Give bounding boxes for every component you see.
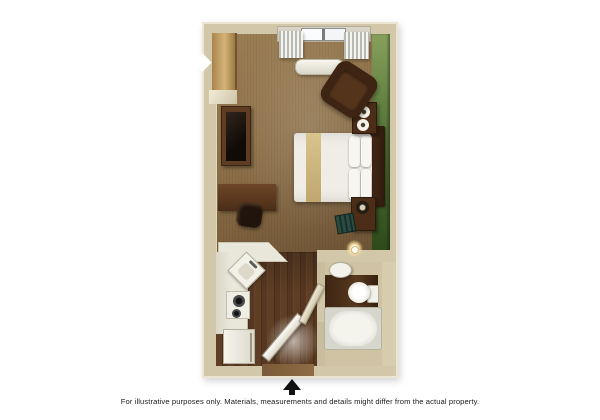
desk-chair-icon: [235, 201, 263, 228]
toilet-icon: [348, 282, 370, 303]
north-arrow-icon: [283, 379, 301, 395]
curtain-right-icon: [344, 32, 369, 59]
pillow-icon: [349, 136, 360, 167]
tv-cabinet-icon: [221, 106, 251, 166]
burner-icon: [232, 309, 241, 318]
fridge-handle: [250, 333, 252, 362]
disclaimer-text: For illustrative purposes only. Material…: [0, 397, 600, 406]
burner-icon: [233, 295, 245, 307]
bathtub-basin: [329, 311, 377, 346]
window-icon: [301, 28, 346, 41]
tv-screen: [226, 112, 246, 161]
table-lamp-icon: [356, 201, 369, 214]
armchair-cushion: [327, 69, 371, 112]
bed-runner-stripe: [306, 133, 321, 202]
closet-shelf: [209, 90, 237, 104]
closet-icon: [212, 33, 237, 90]
pillow-icon: [361, 136, 371, 167]
pillow-icon: [349, 169, 360, 200]
luggage-rack-icon: [334, 212, 356, 234]
floor-plan-canvas: For illustrative purposes only. Material…: [0, 0, 600, 420]
entry-threshold: [262, 364, 314, 376]
bathroom-wall: [382, 262, 396, 366]
bathtub-icon: [324, 307, 382, 350]
curtain-left-icon: [279, 31, 303, 58]
headboard-icon: [370, 126, 385, 207]
cup-icon: [357, 119, 369, 131]
pillow-icon: [361, 169, 371, 200]
bathroom-sink-icon: [329, 262, 352, 278]
sconce-bulb: [351, 246, 359, 254]
refrigerator-icon: [223, 329, 255, 364]
cooktop-icon: [226, 291, 250, 319]
